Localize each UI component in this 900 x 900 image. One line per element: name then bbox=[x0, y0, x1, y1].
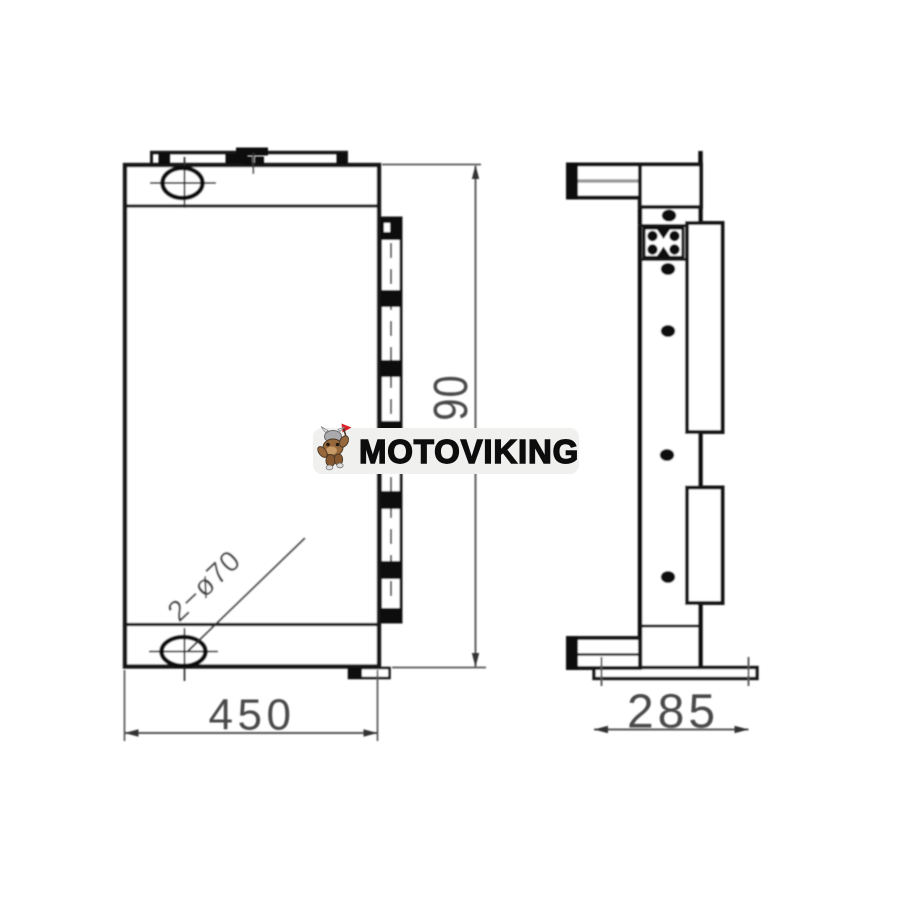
svg-text:MOTOVIKING: MOTOVIKING bbox=[359, 433, 579, 470]
svg-text:450: 450 bbox=[209, 691, 296, 740]
svg-text:90: 90 bbox=[425, 374, 478, 420]
svg-text:285: 285 bbox=[627, 686, 719, 739]
